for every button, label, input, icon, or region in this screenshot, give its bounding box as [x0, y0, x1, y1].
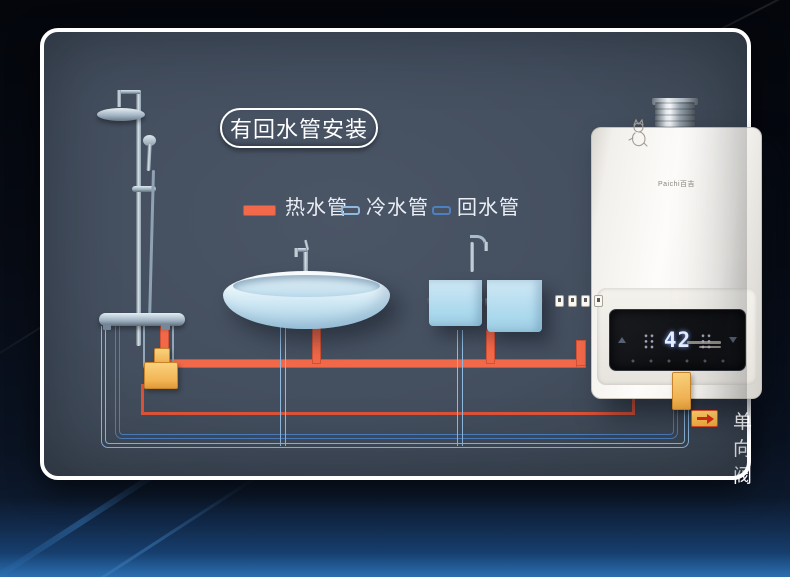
scene: Paichi百吉 42 单向阀	[0, 0, 790, 577]
legend-swatch-cold	[341, 206, 360, 215]
heater-mascot-logo	[625, 118, 651, 148]
shower-hose	[148, 170, 155, 322]
flow-arrow-icon	[697, 417, 708, 420]
pipe-hot-basin-branch	[312, 324, 321, 364]
basin-faucet-tip	[294, 248, 298, 257]
pipe-cold-loop-inner	[105, 326, 685, 444]
pipe-return-line-rise	[632, 390, 635, 415]
shower-head	[97, 108, 145, 121]
heater-button	[594, 295, 603, 307]
sink-faucet-spout	[484, 242, 488, 251]
sink-right-rim	[485, 298, 543, 306]
pipe-return-loop-inner	[119, 326, 674, 435]
title-badge: 有回水管安装	[220, 108, 378, 148]
pipe-return-loop-outer	[115, 326, 678, 439]
pipe-return-line-horizontal	[141, 412, 635, 415]
wall-panel: Paichi百吉 42 单向阀	[40, 28, 751, 480]
basin-faucet-post	[303, 248, 308, 274]
heater-button	[581, 295, 590, 307]
heater-body	[591, 127, 762, 399]
pipe-cold-basin-drop	[280, 324, 286, 446]
heater-flue	[655, 102, 695, 129]
display-dot-grid	[643, 333, 655, 350]
shower-mixer-bar	[99, 313, 185, 326]
pipe-return-line-shower-drop	[141, 384, 144, 415]
legend-label-cold: 冷水管	[366, 197, 429, 219]
shower-slider-bracket	[132, 186, 156, 192]
flow-arrow-icon	[707, 414, 714, 424]
display-touch-icons	[624, 359, 733, 363]
sink-left-top	[430, 301, 480, 313]
shower-hose-loop	[143, 326, 174, 379]
sink-right-top	[488, 301, 540, 313]
heater-model-print	[699, 346, 721, 348]
heater-display: 42	[609, 309, 746, 371]
mixer-hot-nub	[161, 324, 170, 330]
heater-button	[555, 295, 564, 307]
temp-up-icon	[618, 337, 626, 343]
legend-swatch-hot	[243, 205, 276, 216]
basin-bowl	[223, 271, 390, 329]
pipe-hot-main	[154, 359, 586, 368]
check-valve-label: 单向阀	[733, 407, 753, 488]
legend-label-hot: 热水管	[285, 197, 348, 219]
pipe-return-line-to-valve	[632, 390, 655, 393]
legend-label-return: 回水管	[457, 197, 520, 219]
pipe-hot-heater-drop	[576, 340, 586, 366]
hand-shower-head	[143, 135, 156, 146]
heater-button	[568, 295, 577, 307]
pipe-hot-heater-elbow	[576, 362, 586, 368]
hand-shower-handle	[146, 144, 151, 171]
display-dot-grid	[700, 333, 712, 350]
basin-faucet-lever	[304, 240, 309, 250]
sink-left-front	[429, 280, 482, 326]
pipe-legend: 热水管 冷水管 回水管	[44, 197, 755, 223]
legend-swatch-return	[432, 206, 451, 215]
heater-model-print	[687, 341, 721, 344]
heater-flue-cap	[652, 98, 698, 105]
shower-riser	[136, 90, 141, 346]
sink-faucet-arc	[470, 235, 487, 245]
pipe-cold-loop-outer	[101, 326, 689, 448]
pipe-hot-shower-riser	[160, 322, 169, 364]
heater-brand: Paichi百吉	[591, 179, 762, 189]
shower-arm	[117, 90, 141, 94]
tee-valve-body	[144, 362, 178, 389]
basin-faucet-spout	[294, 248, 308, 252]
check-valve-body	[672, 372, 691, 410]
check-valve-arrow-box	[691, 410, 718, 427]
temperature-readout: 42	[610, 310, 745, 370]
shower-arm-elbow	[117, 90, 121, 107]
pipe-cold-sink-drop	[457, 330, 463, 446]
mixer-cold-nub	[103, 324, 111, 330]
basin-rim	[233, 275, 380, 297]
pipe-hot-sink-branch	[486, 330, 495, 364]
tee-valve-stem	[154, 348, 170, 368]
heater-control-bezel	[597, 288, 757, 385]
sink-right-front	[487, 280, 542, 332]
temp-down-icon	[729, 337, 737, 343]
sink-left-rim	[427, 298, 483, 306]
bottom-glow	[0, 497, 790, 577]
sink-faucet-neck	[470, 242, 474, 272]
